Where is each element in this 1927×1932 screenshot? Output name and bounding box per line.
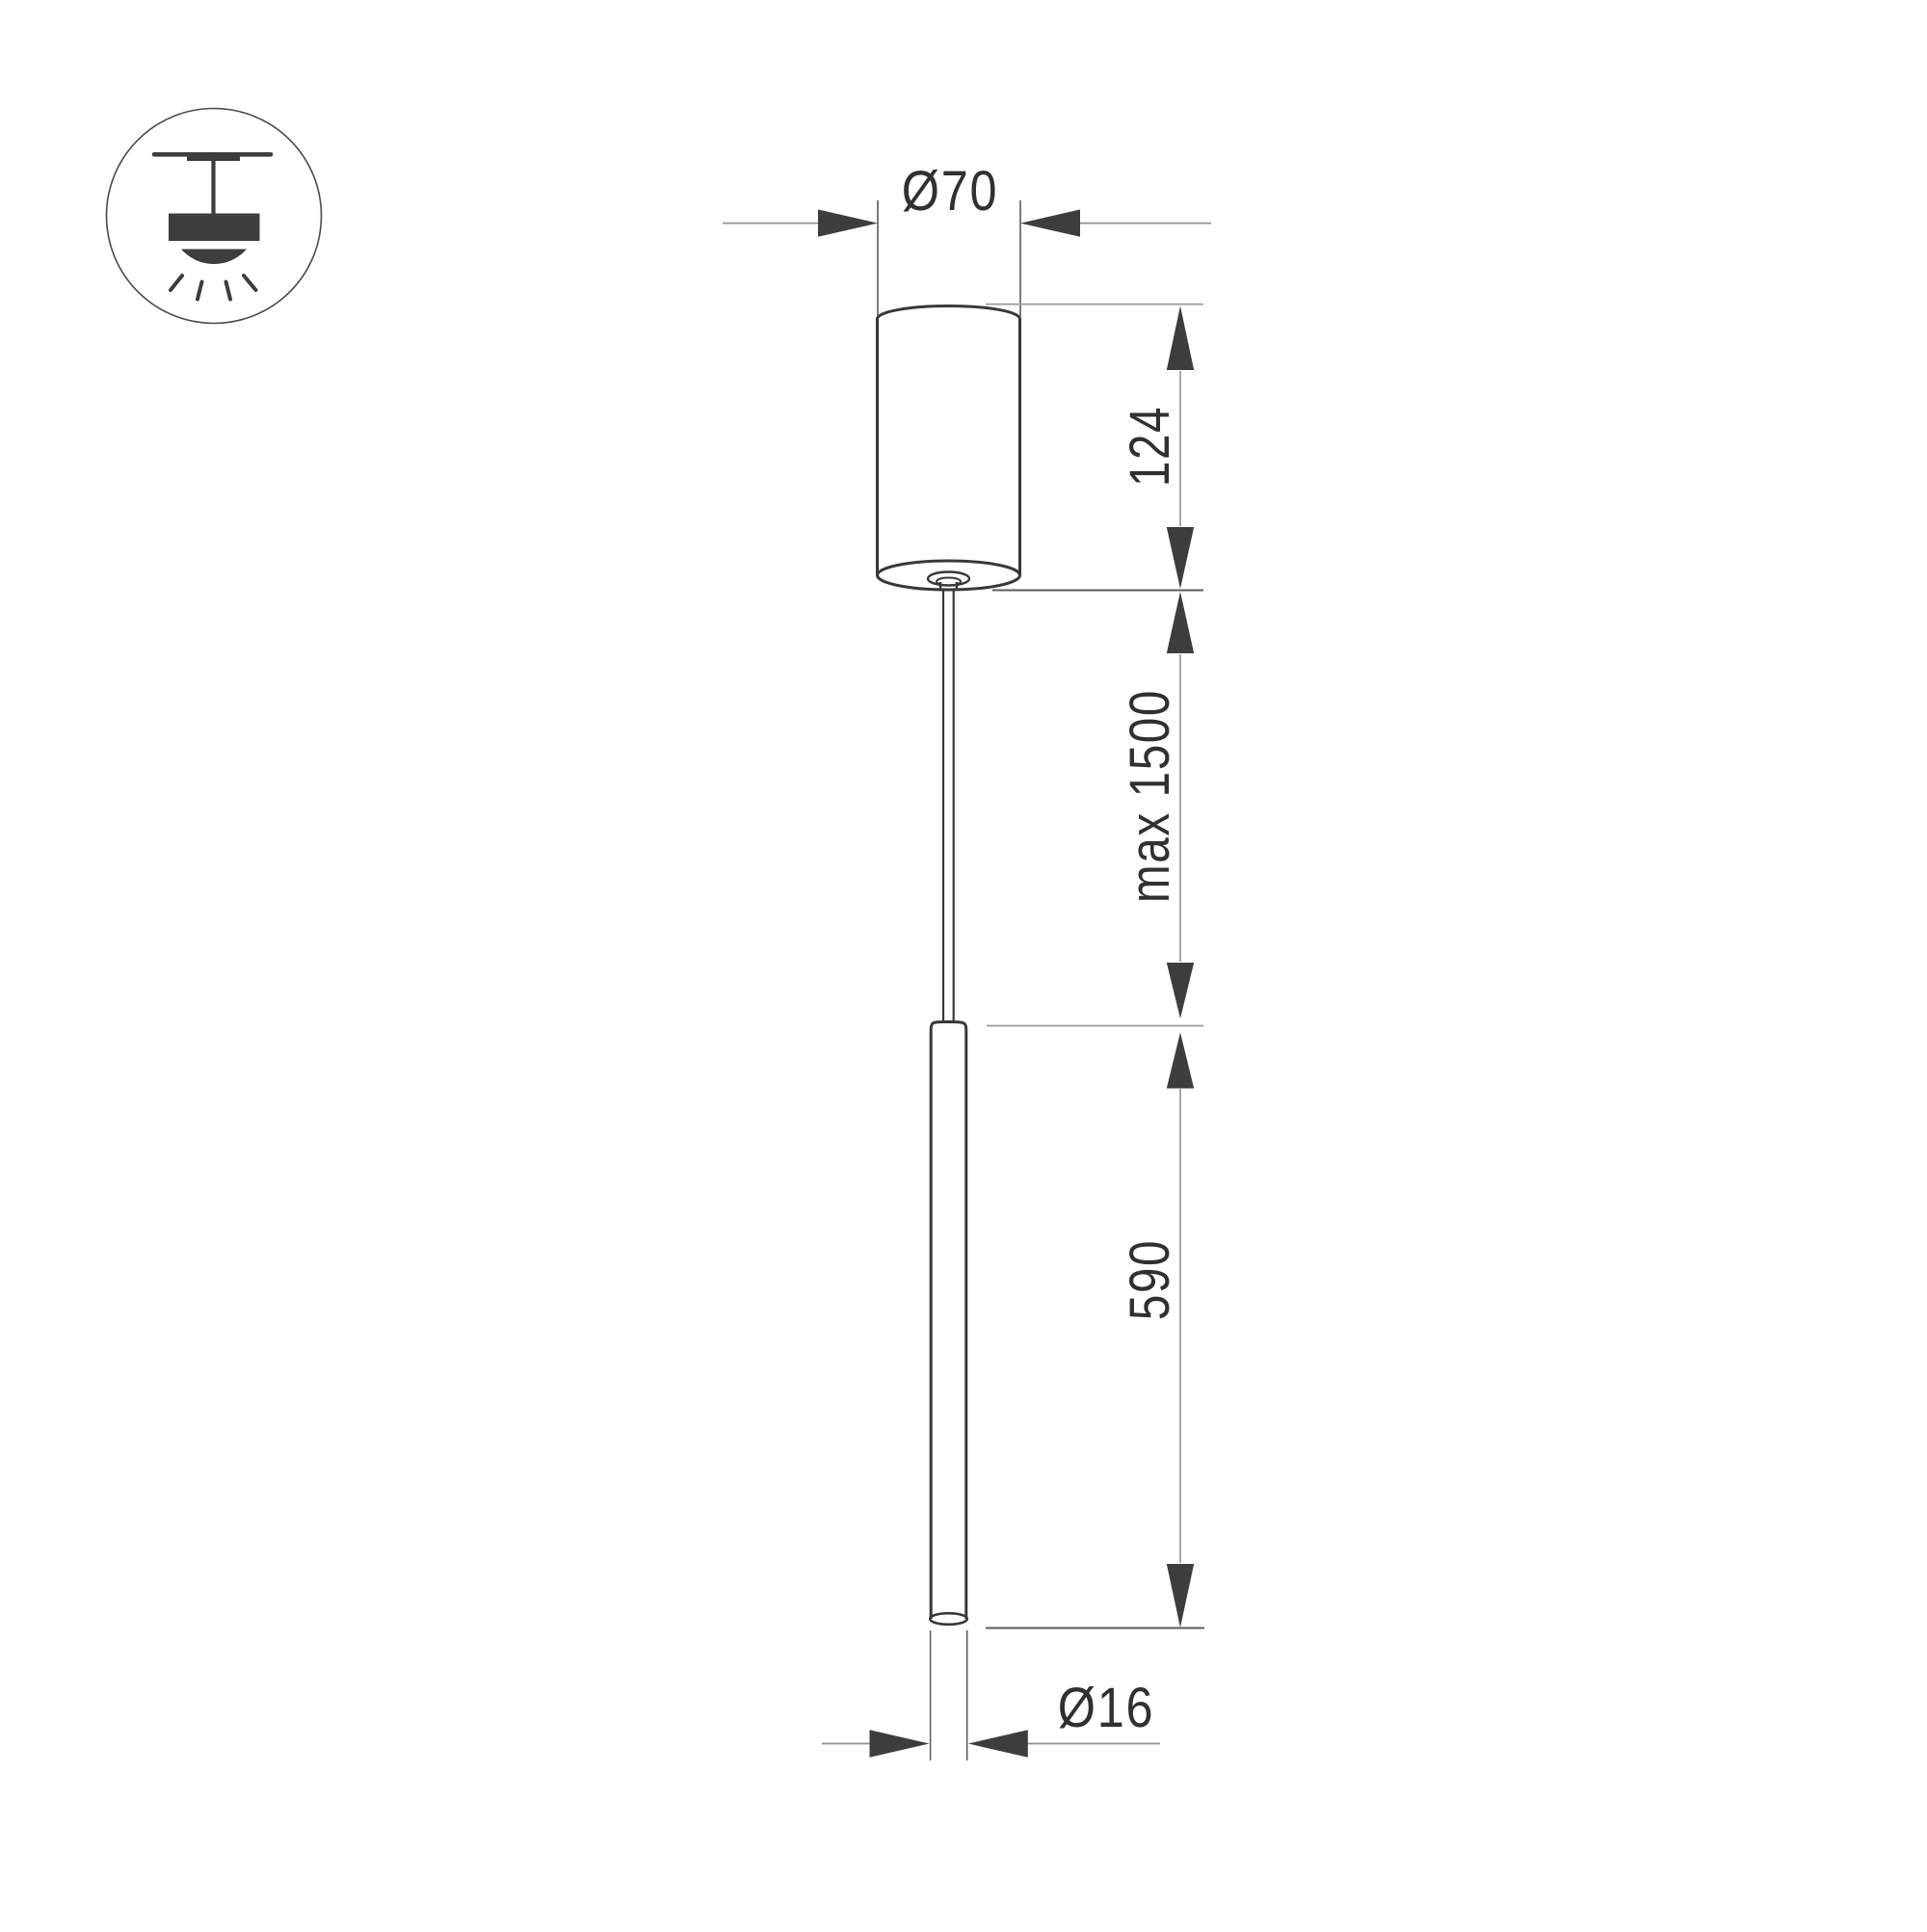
- svg-text:590: 590: [1120, 1239, 1182, 1320]
- svg-text:Ø70: Ø70: [902, 160, 999, 223]
- svg-text:max 1500: max 1500: [1120, 689, 1182, 903]
- svg-text:Ø16: Ø16: [1058, 1677, 1155, 1739]
- svg-text:124: 124: [1120, 406, 1182, 487]
